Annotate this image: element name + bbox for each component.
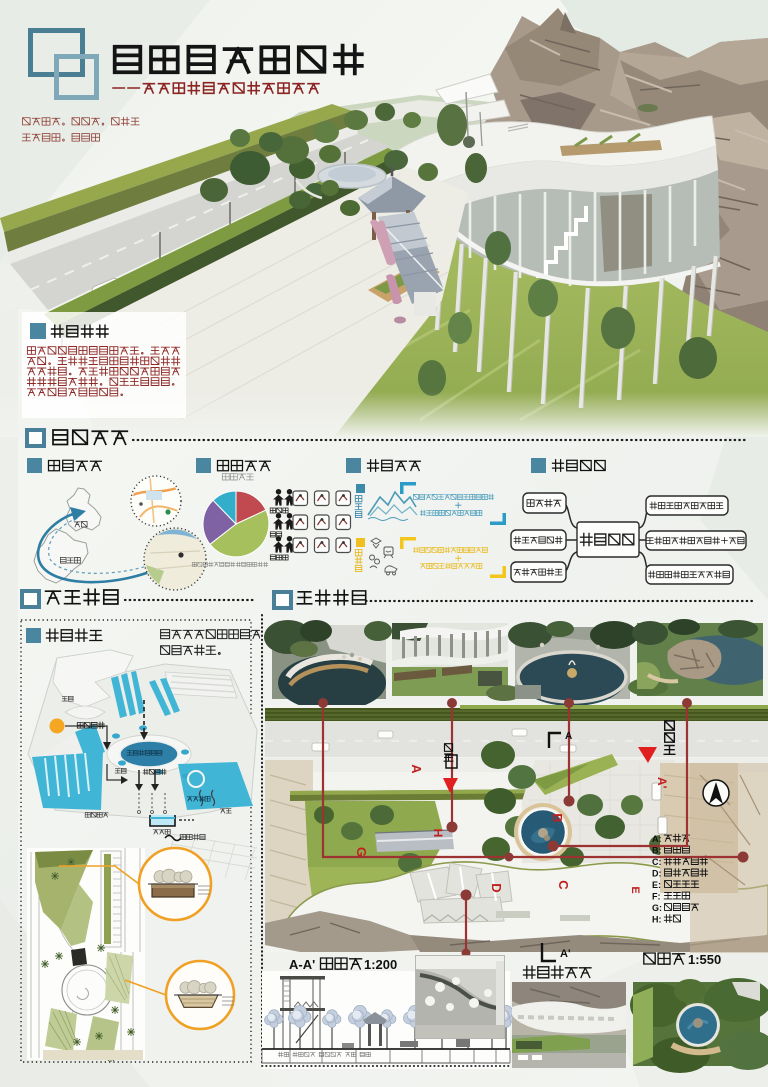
svg-text:A: A: [409, 764, 424, 774]
svg-text:A: A: [565, 731, 572, 742]
svg-text:E: E: [629, 886, 641, 893]
svg-text:A': A': [560, 948, 571, 960]
svg-text:B: B: [550, 813, 565, 822]
svg-text:D:: D:: [652, 869, 662, 879]
svg-text:D: D: [489, 883, 504, 892]
svg-text:H: H: [431, 829, 445, 838]
svg-text:G:: G:: [652, 903, 662, 913]
svg-text:C:: C:: [652, 857, 662, 867]
svg-text:A': A': [655, 777, 669, 789]
svg-text:E:: E:: [652, 880, 661, 890]
svg-text:A-A': A-A': [289, 957, 315, 972]
svg-text:H:: H:: [652, 915, 662, 925]
svg-text:G: G: [354, 847, 369, 857]
svg-text:1:550: 1:550: [688, 952, 721, 967]
svg-text:F:: F:: [652, 892, 661, 902]
svg-text:1:200: 1:200: [364, 957, 397, 972]
svg-text:A:: A:: [652, 834, 662, 844]
svg-text:C: C: [556, 880, 571, 890]
